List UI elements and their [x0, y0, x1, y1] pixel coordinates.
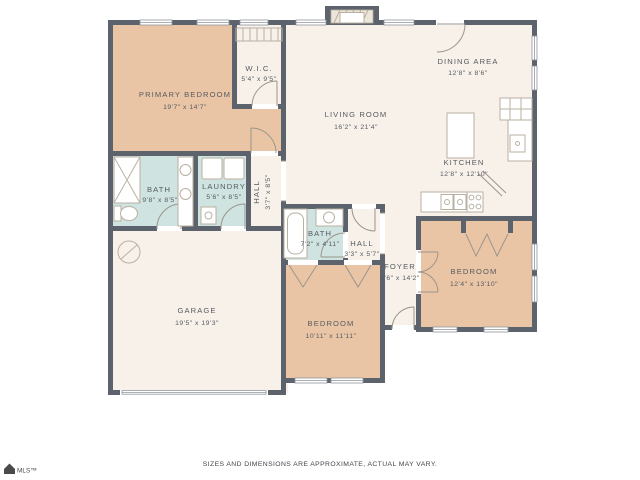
- range-fixture: [467, 192, 483, 212]
- room-dims-hall-bedroom: 3'7" x 8'5": [265, 174, 272, 209]
- room-dims-bath2: 7'2" x 4'11": [301, 241, 340, 248]
- fireplace-fixture: [331, 10, 373, 23]
- room-label-primary-bedroom: PRIMARY BEDROOM: [139, 90, 231, 99]
- room-dims-bedroom2: 12'4" x 13'10": [450, 281, 498, 288]
- mls-logo: MLS™: [4, 464, 37, 475]
- floorplan-svg: PRIMARY BEDROOM 19'7" x 14'7" W.I.C. 5'4…: [0, 0, 640, 480]
- closet-stub-left: [461, 221, 466, 233]
- shower-fixture: [114, 157, 140, 203]
- closet-stub-right: [508, 221, 513, 233]
- cased-opening-hall-living: [281, 161, 286, 201]
- room-label-foyer: FOYER: [384, 262, 416, 271]
- room-dims-bedroom3: 10'11" x 11'11": [306, 333, 357, 340]
- bathtub-fixture: [284, 209, 307, 258]
- room-dims-laundry: 5'6" x 8'5": [206, 194, 241, 201]
- vanity-sink-fixture: [316, 209, 343, 226]
- room-label-garage: GARAGE: [177, 306, 216, 315]
- room-label-bath-primary: BATH: [147, 185, 171, 194]
- utility-sink-fixture: [201, 207, 216, 224]
- footer: SIZES AND DIMENSIONS ARE APPROXIMATE, AC…: [4, 461, 437, 475]
- room-label-laundry: LAUNDRY: [202, 182, 246, 191]
- mls-logo-text: MLS™: [17, 468, 37, 475]
- room-dims-wic: 5'4" x 9'5": [241, 76, 276, 83]
- cased-opening-foyer-hall: [380, 213, 385, 254]
- room-label-bedroom3: BEDROOM: [308, 319, 355, 328]
- room-label-kitchen: KITCHEN: [443, 158, 484, 167]
- room-label-bath2: BATH: [308, 229, 332, 238]
- room-dims-garage: 19'5" x 19'3": [175, 320, 219, 327]
- double-vanity-fixture: [178, 157, 193, 226]
- room-dims-primary-bedroom: 19'7" x 14'7": [163, 104, 207, 111]
- room-label-bedroom2: BEDROOM: [451, 267, 498, 276]
- corner-counter-fixture: [500, 98, 532, 120]
- house-icon: [4, 464, 15, 475]
- room-dims-dining-area: 12'8" x 8'6": [448, 70, 488, 77]
- room-dims-kitchen: 12'8" x 12'10": [440, 171, 488, 178]
- room-dims-foyer: 4'6" x 14'2": [380, 275, 420, 282]
- room-label-hall-bedroom: HALL: [252, 180, 261, 203]
- disclaimer-text: SIZES AND DIMENSIONS ARE APPROXIMATE, AC…: [203, 461, 437, 468]
- kitchen-island-fixture: [447, 113, 474, 158]
- garage-door-fixture: [122, 391, 266, 395]
- toilet-fixture: [114, 206, 138, 221]
- room-label-wic: W.I.C.: [245, 64, 272, 73]
- room-label-dining-area: DINING AREA: [437, 57, 498, 66]
- room-dims-living-room: 16'2" x 21'4": [334, 124, 378, 131]
- room-label-hall-foyer: HALL: [350, 239, 373, 248]
- right-counter-fixture: [508, 120, 532, 161]
- room-dims-hall-foyer: 3'3" x 5'7": [344, 251, 379, 258]
- room-dims-bath-primary: 9'8" x 8'5": [142, 197, 177, 204]
- room-label-living-room: LIVING ROOM: [325, 110, 388, 119]
